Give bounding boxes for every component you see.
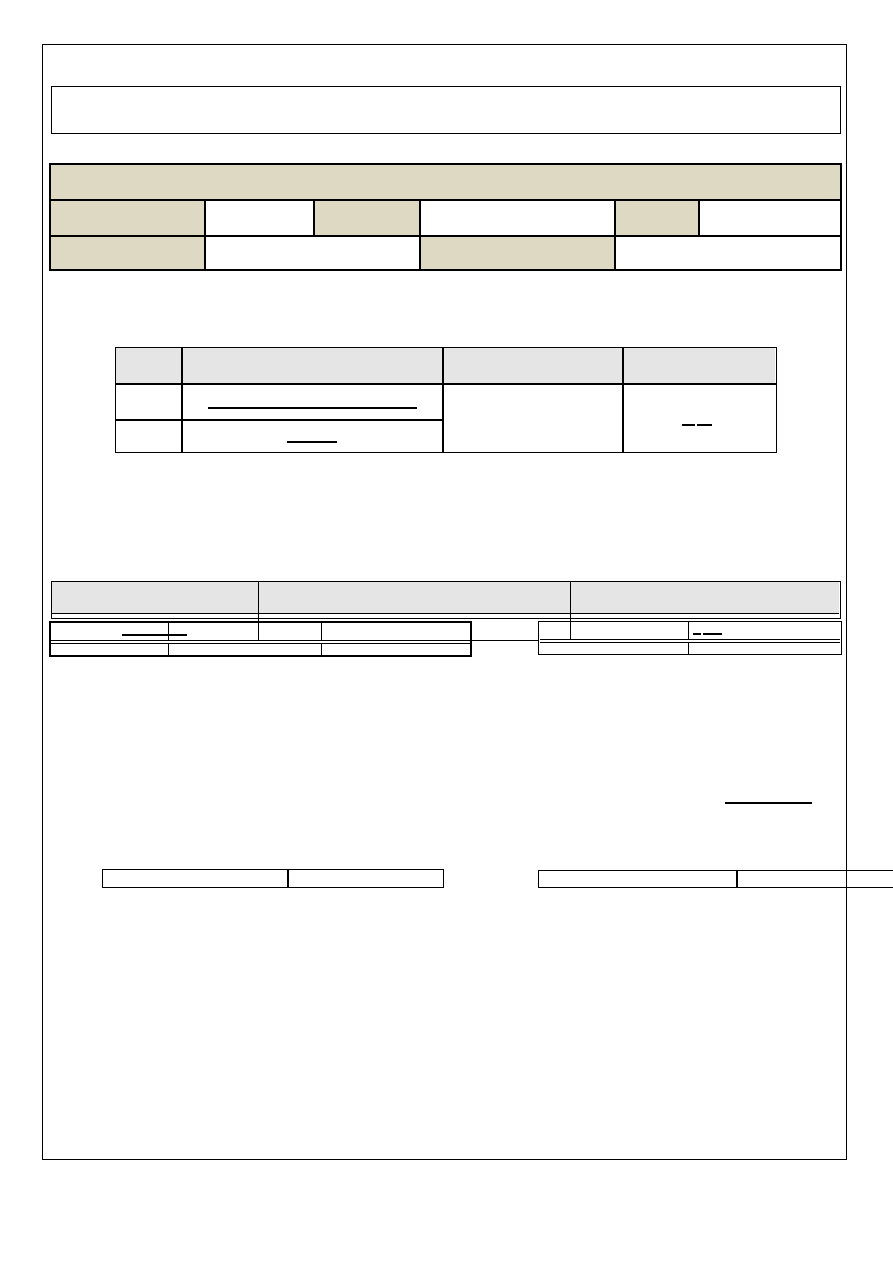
tan-table-row2-rule-v5 — [698, 199, 700, 236]
tan-table-header-cell — [51, 165, 840, 199]
right-subtable-border — [538, 621, 842, 655]
tan-table-rule-h1 — [51, 199, 840, 201]
tan-table-row3-rule-v3 — [614, 235, 616, 269]
left-subtable-rowA-v1 — [168, 621, 169, 640]
document-page — [0, 0, 893, 1263]
tan-table-row3-cell1 — [51, 236, 204, 269]
tan-table-row3-rule-v2 — [419, 235, 421, 269]
left-subtable-fill-in-line — [122, 634, 187, 636]
tan-table-row2-cell3 — [313, 200, 419, 235]
small-table-row-divider — [115, 419, 444, 421]
tan-table-row2-cell5 — [614, 200, 698, 235]
tan-table-row2-rule-v3 — [419, 199, 421, 236]
bottom-left-table-divider — [287, 869, 289, 888]
right-subtable-dash-1 — [693, 633, 701, 635]
small-table-rule-v1 — [181, 347, 183, 453]
right-subtable-mid-rule-a — [540, 639, 840, 640]
right-subtable-rowA-v1 — [688, 621, 689, 639]
tan-table-row2-rule-v2 — [313, 199, 315, 236]
tan-table-row2-rule-v1 — [204, 199, 206, 236]
small-table-rule-v2 — [442, 347, 444, 453]
fill-in-dash-2 — [697, 424, 712, 426]
left-subtable-rowA-v2 — [321, 621, 322, 640]
left-subtable-rowB-v2 — [321, 644, 322, 657]
left-subtable-mid-rule-b — [51, 643, 470, 644]
right-subtable-mid-rule-b — [540, 642, 840, 643]
small-table-header-rule — [115, 383, 777, 385]
tan-table-rule-h2 — [51, 235, 840, 237]
left-subtable-rowB-v1 — [168, 644, 169, 657]
tan-table-row3-rule-v1 — [204, 235, 206, 269]
bottom-right-table-border — [538, 870, 893, 888]
left-subtable-mid-rule-a — [51, 640, 470, 641]
fill-in-dash-1 — [682, 424, 695, 426]
small-table-header-row — [116, 348, 775, 383]
standalone-fill-in-line — [725, 802, 812, 804]
tan-table-row3-cell3 — [419, 236, 614, 269]
bottom-right-table-divider — [736, 870, 738, 888]
fill-in-line-1 — [208, 407, 417, 409]
right-subtable-dash-2 — [703, 633, 722, 635]
top-outlined-box — [51, 86, 841, 134]
wide-header-row — [52, 582, 839, 613]
tan-table-row2-rule-v4 — [614, 199, 616, 236]
tan-table-row2-cell1 — [51, 200, 204, 235]
small-table-rule-v3 — [622, 347, 624, 453]
bottom-left-table-border — [102, 869, 444, 888]
left-subtable-border — [49, 621, 472, 657]
wide-header-rule — [52, 613, 839, 614]
right-subtable-rowB-v1 — [688, 643, 689, 655]
fill-in-line-2 — [287, 441, 337, 443]
subtable-gap-rule — [472, 640, 538, 641]
